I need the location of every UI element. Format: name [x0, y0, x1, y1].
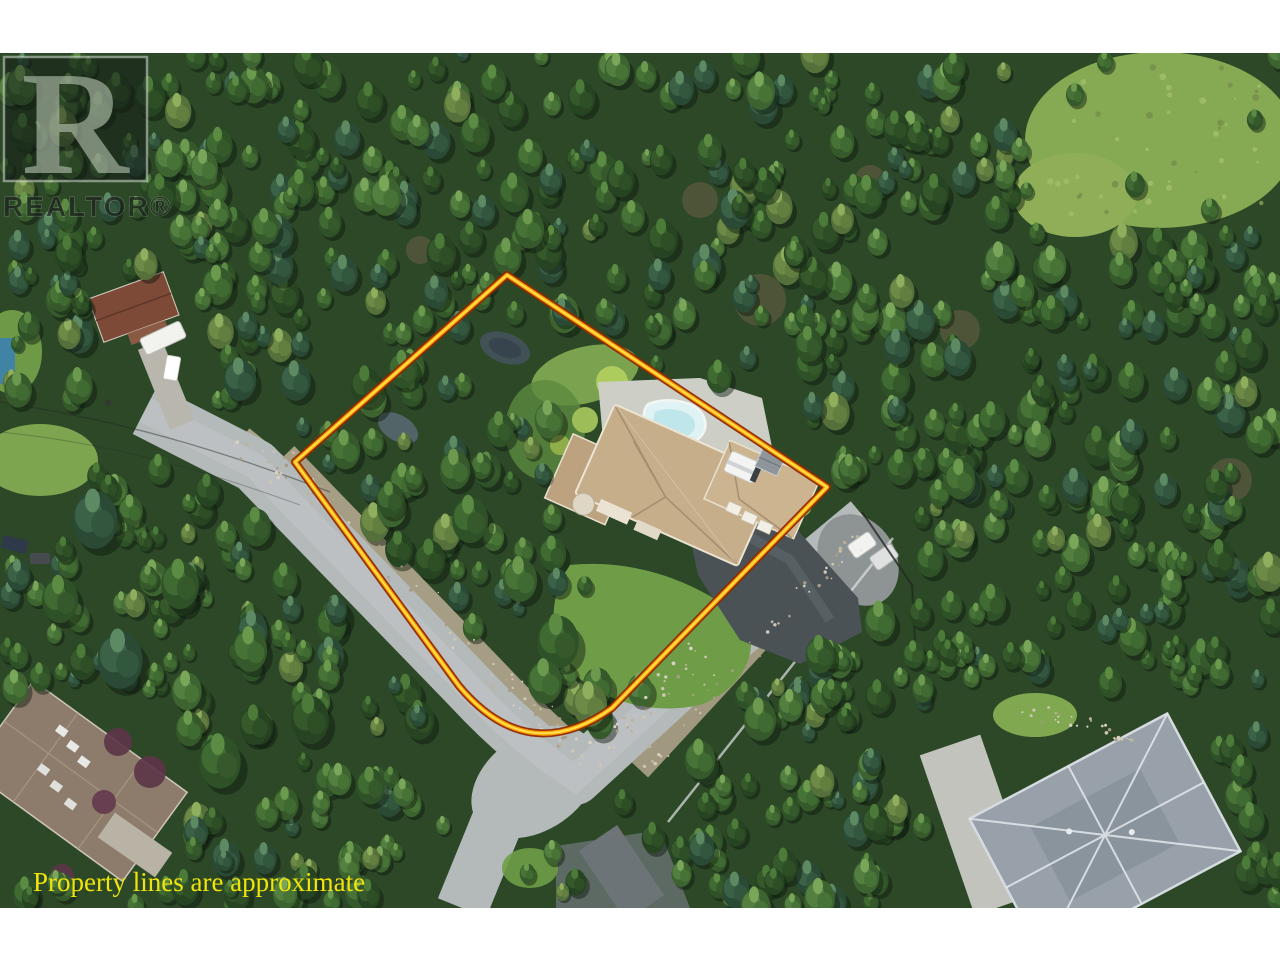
- realtor-watermark: R REALTOR®: [3, 42, 172, 222]
- top-white-band: [0, 0, 1280, 53]
- purple-shrub: [104, 728, 132, 756]
- screenshot: R REALTOR® Property lines are approximat…: [0, 0, 1280, 960]
- photo-area: R REALTOR® Property lines are approximat…: [0, 35, 1280, 957]
- bottom-white-band: [0, 908, 1280, 960]
- purple-shrub: [92, 790, 116, 814]
- purple-shrub: [134, 756, 166, 788]
- aerial-photo-canvas: R REALTOR® Property lines are approximat…: [0, 0, 1280, 960]
- realtor-wordmark: REALTOR®: [3, 191, 172, 222]
- dark-car: [30, 553, 50, 564]
- realtor-logo-letter: R: [22, 42, 131, 206]
- br-garden: [993, 693, 1077, 737]
- caption-text: Property lines are approximate: [33, 867, 365, 897]
